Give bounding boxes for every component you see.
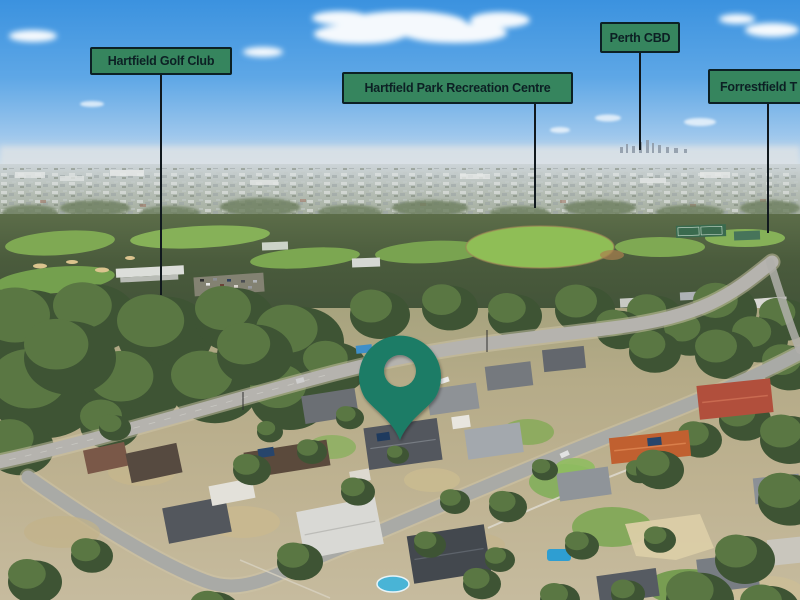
- callout-label: Hartfield Golf Club: [108, 54, 215, 68]
- aerial-photo: Hartfield Golf Club Hartfield Park Recre…: [0, 0, 800, 600]
- callout-forrestfield: Forrestfield T: [708, 69, 800, 104]
- leader-line-perth-cbd: [639, 52, 641, 150]
- callout-hartfield-golf-club: Hartfield Golf Club: [90, 47, 232, 75]
- callout-label: Perth CBD: [610, 31, 671, 45]
- callout-hartfield-park-recreation-centre: Hartfield Park Recreation Centre: [342, 72, 573, 104]
- leader-line-hartfield-park-recreation-centre: [534, 103, 536, 208]
- leader-line-hartfield-golf-club: [160, 74, 162, 295]
- swimming-pool: [377, 576, 409, 592]
- callout-perth-cbd: Perth CBD: [600, 22, 680, 53]
- callout-label: Forrestfield T: [720, 80, 797, 94]
- callout-label: Hartfield Park Recreation Centre: [364, 81, 550, 95]
- leader-line-forrestfield: [767, 103, 769, 233]
